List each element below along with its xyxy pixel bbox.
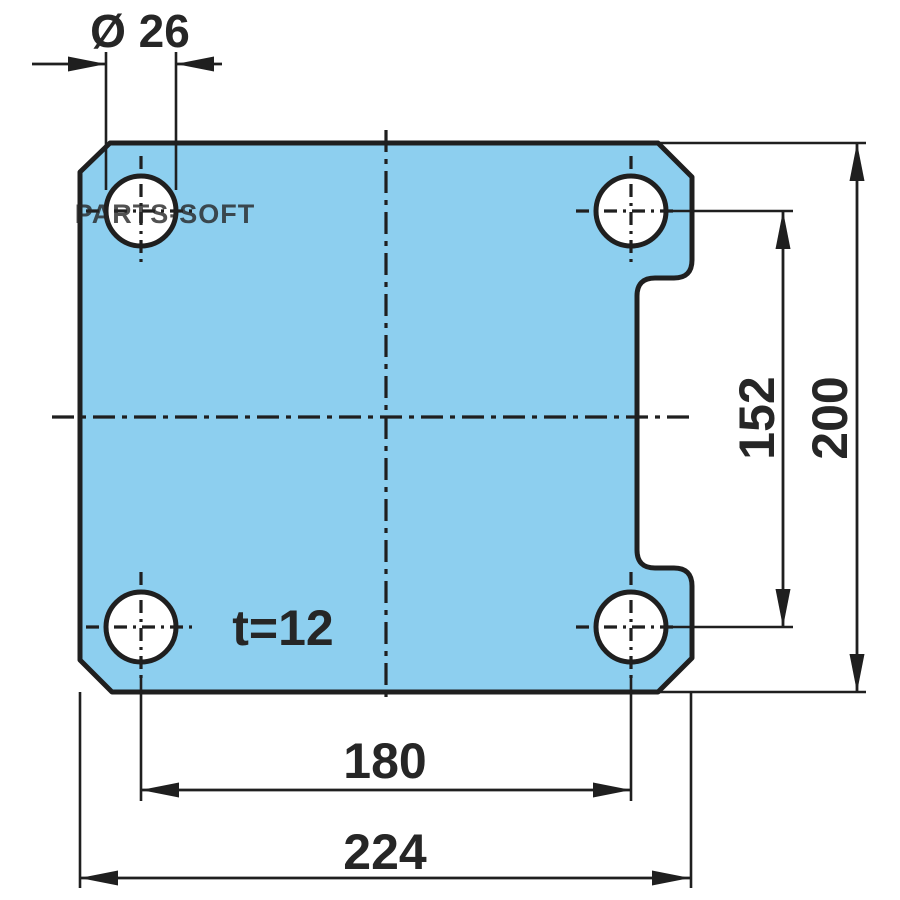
watermark-text: PARTS-SOFT	[75, 199, 256, 229]
label-hole-diameter: Ø 26	[90, 5, 190, 57]
label-vertical-hole-spacing: 152	[729, 376, 785, 459]
label-plate-width: 224	[343, 824, 427, 880]
label-horizontal-hole-spacing: 180	[343, 733, 426, 789]
technical-drawing: Ø 26 152 200 180 224 t=12 PARTS-SOFT	[0, 0, 900, 900]
label-plate-height: 200	[802, 376, 858, 459]
label-thickness: t=12	[232, 600, 333, 656]
drawing-canvas: Ø 26 152 200 180 224 t=12 PARTS-SOFT	[0, 0, 900, 900]
